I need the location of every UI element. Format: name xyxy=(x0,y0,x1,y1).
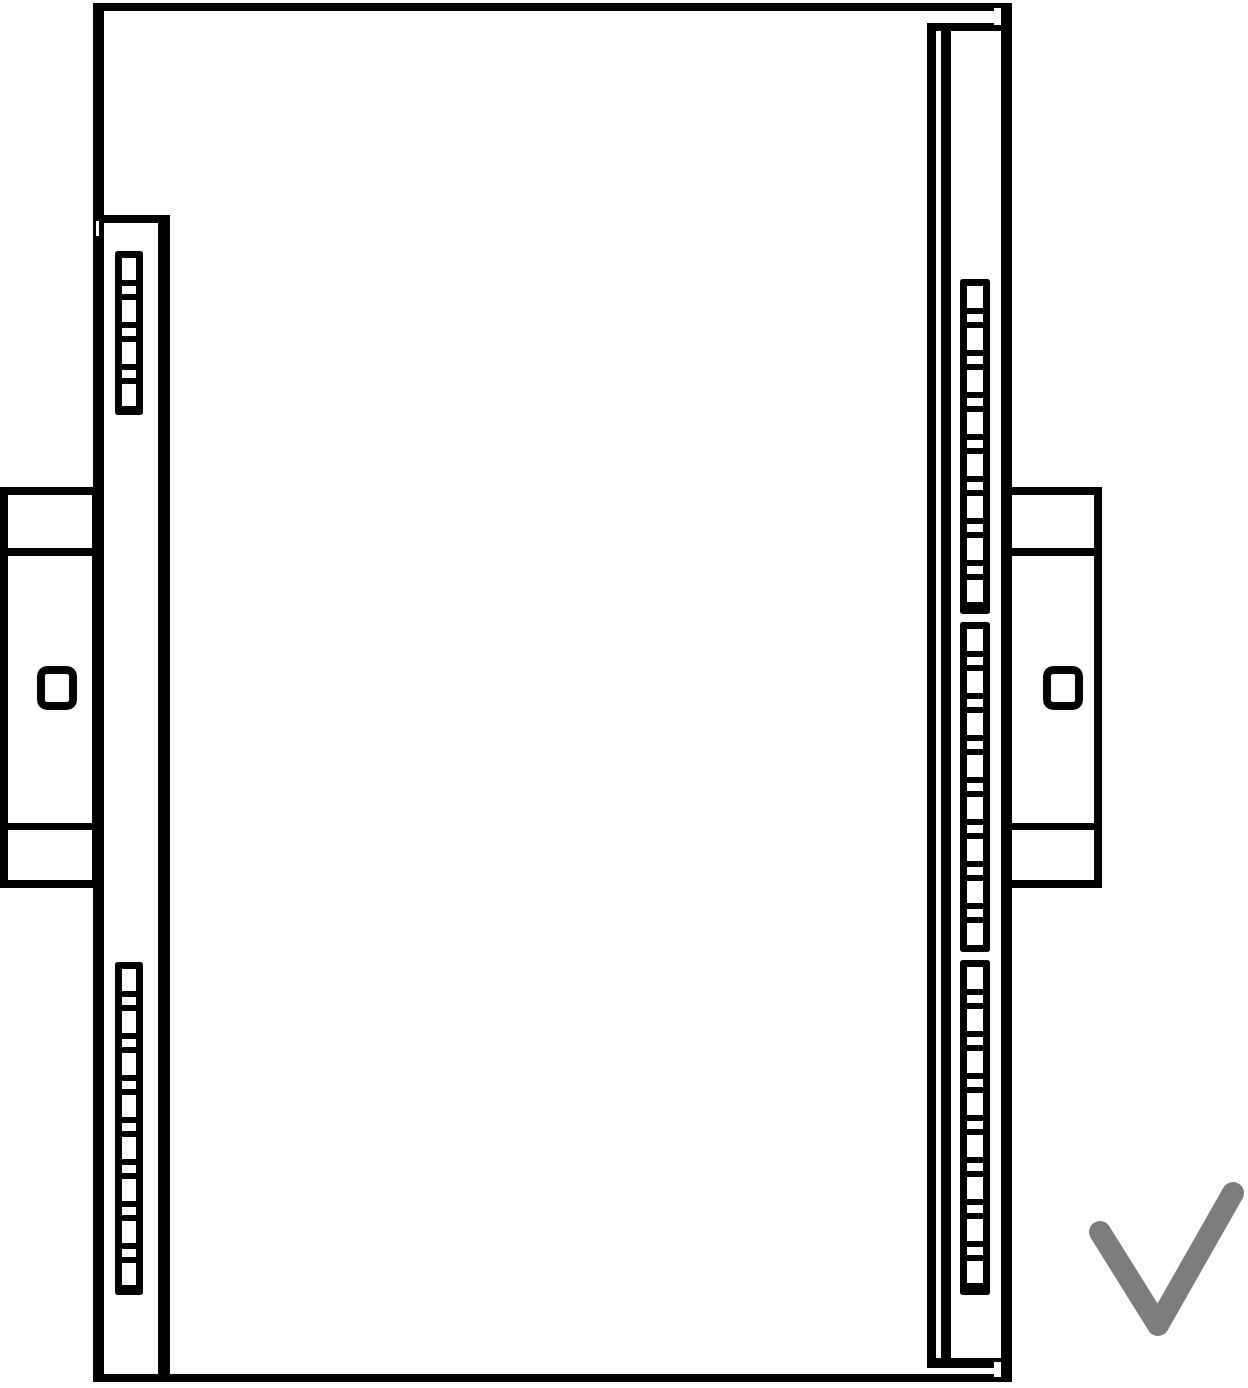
checkmark-stroke xyxy=(1100,1193,1233,1325)
technical-drawing-canvas xyxy=(0,0,1248,1388)
checkmark-icon xyxy=(0,0,1248,1388)
